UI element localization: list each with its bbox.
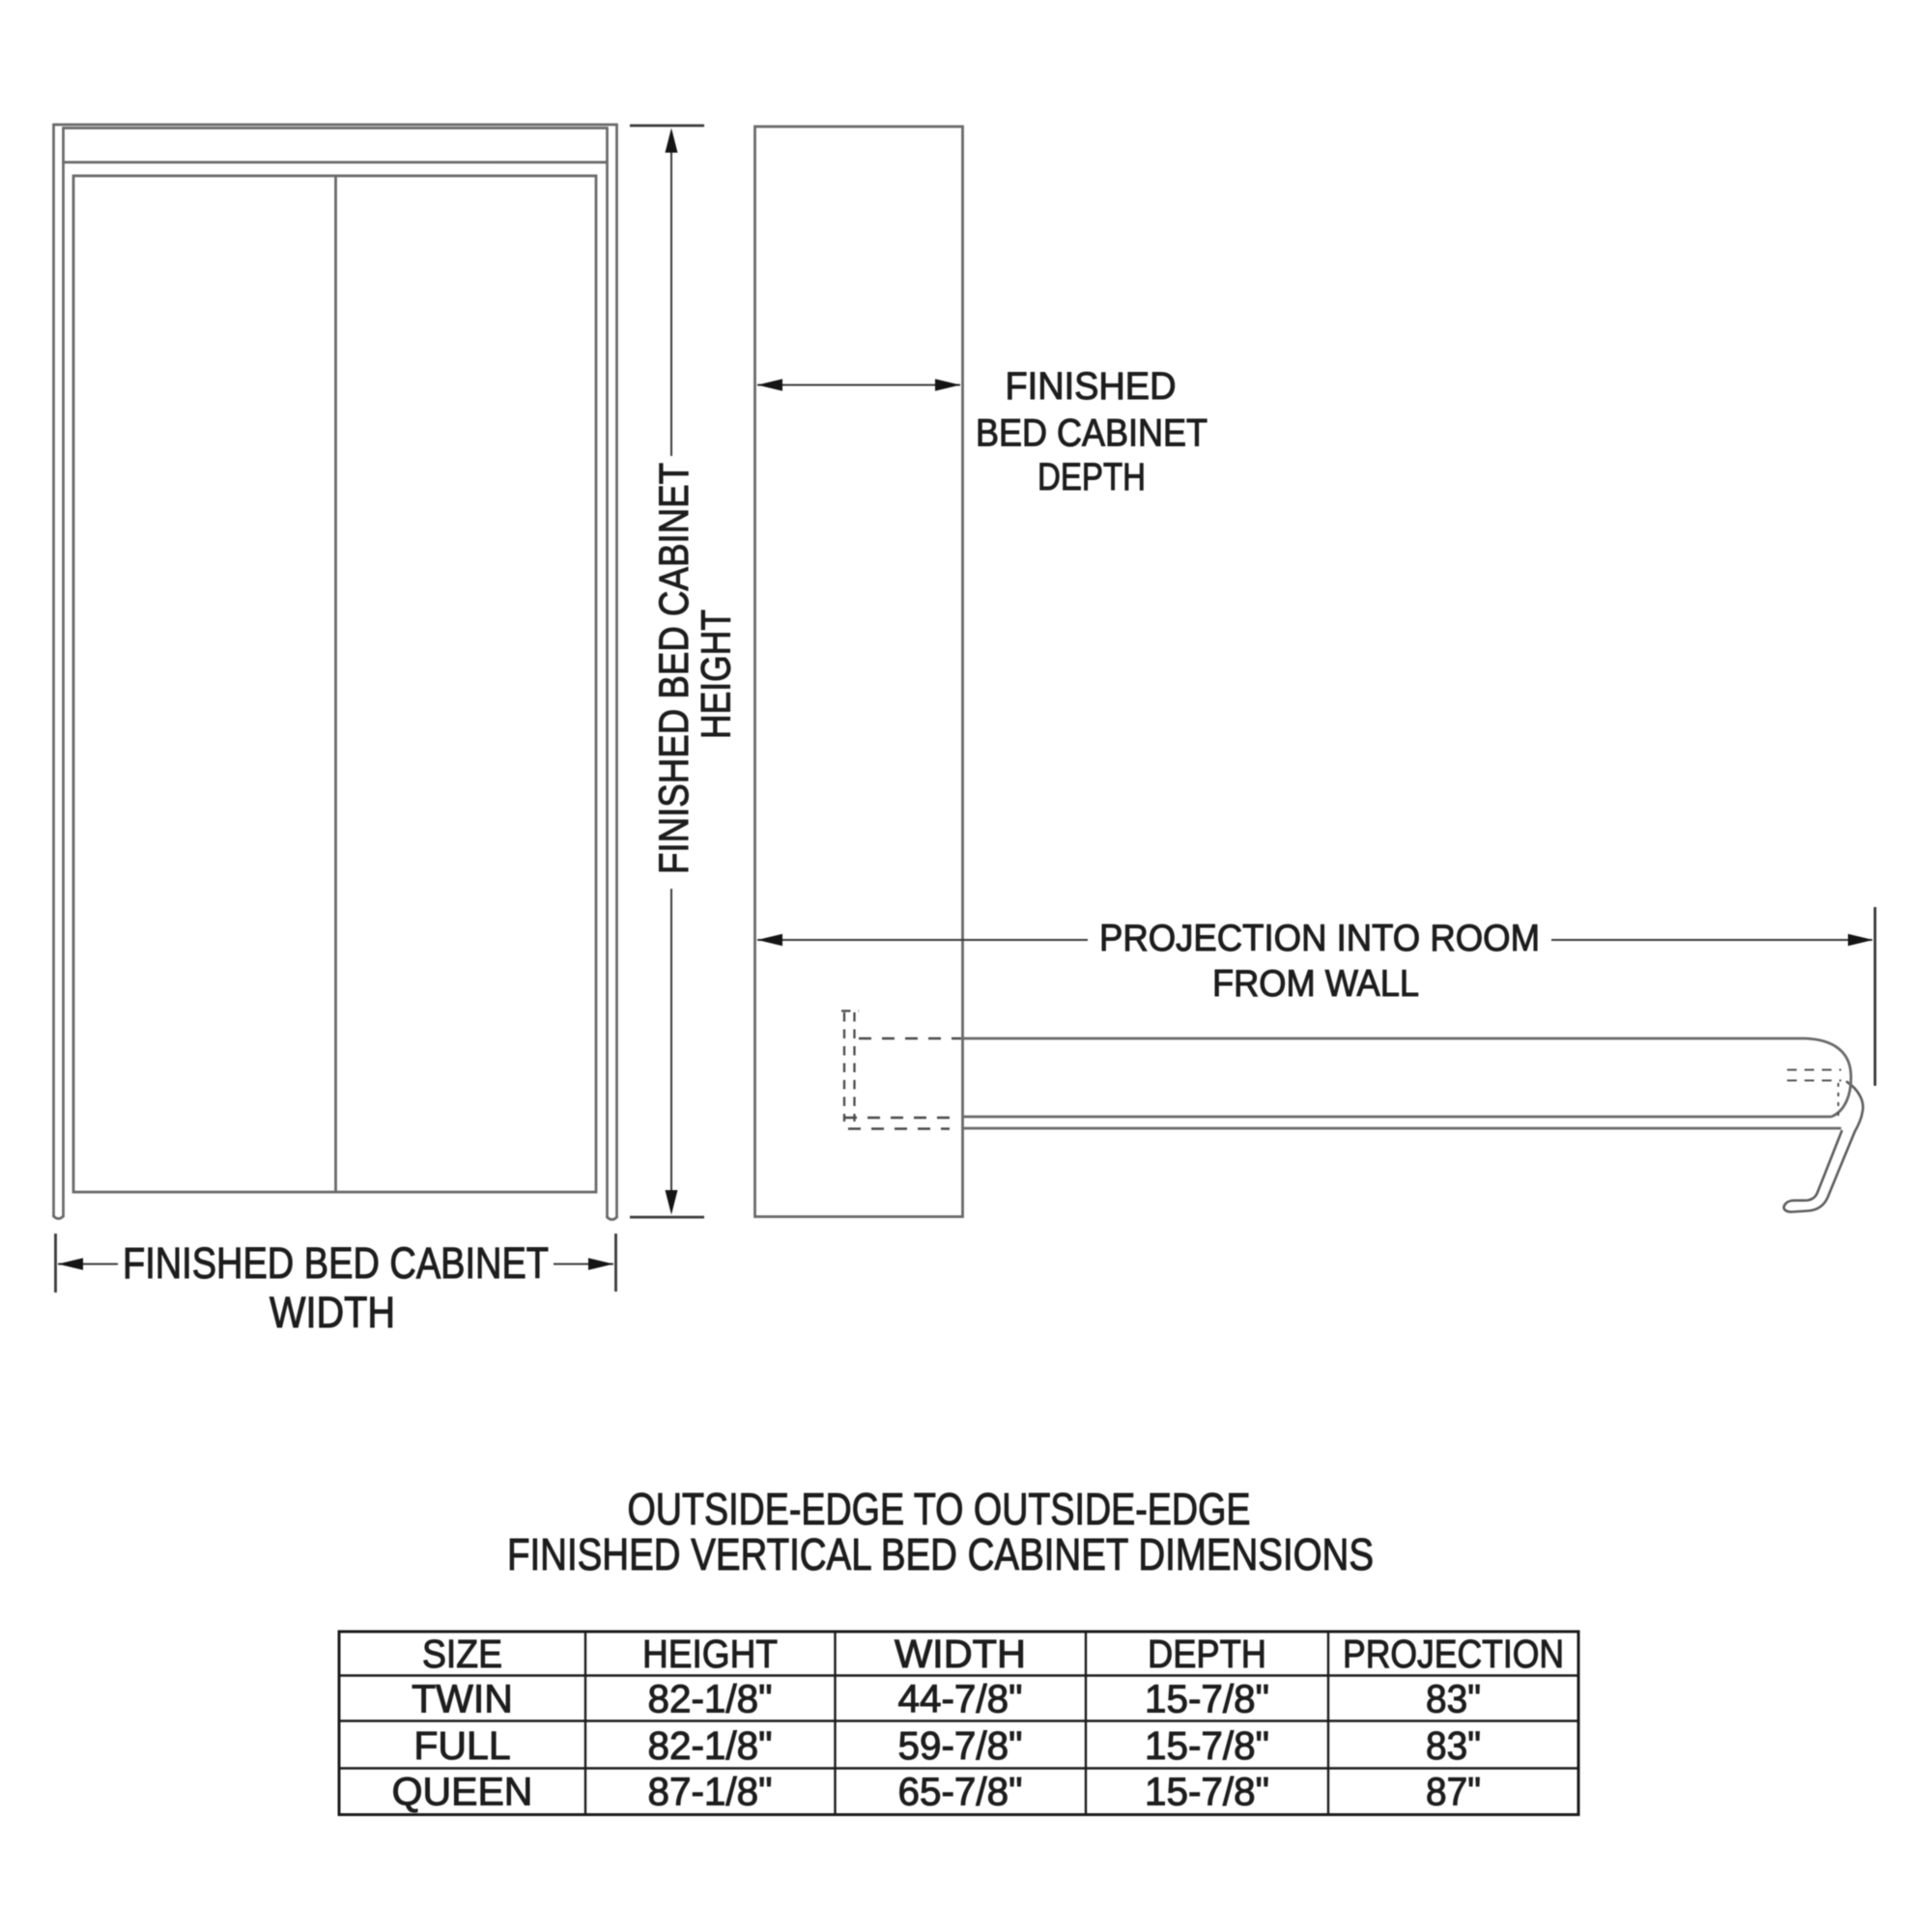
svg-text:87-1/8": 87-1/8" <box>648 1770 773 1814</box>
svg-text:15-7/8": 15-7/8" <box>1145 1770 1269 1814</box>
svg-text:82-1/8": 82-1/8" <box>648 1723 773 1768</box>
svg-text:FINISHED BED CABINET: FINISHED BED CABINET <box>123 1238 549 1288</box>
svg-text:FINISHED VERTICAL BED CABINET: FINISHED VERTICAL BED CABINET DIMENSIONS <box>507 1529 1374 1579</box>
svg-text:FULL: FULL <box>413 1723 510 1768</box>
svg-text:FINISHED BED CABINET: FINISHED BED CABINET <box>651 463 697 874</box>
svg-text:15-7/8": 15-7/8" <box>1145 1723 1269 1768</box>
svg-text:TWIN: TWIN <box>412 1677 513 1721</box>
svg-text:WIDTH: WIDTH <box>895 1632 1026 1676</box>
svg-text:44-7/8": 44-7/8" <box>898 1677 1023 1721</box>
svg-text:82-1/8": 82-1/8" <box>648 1677 773 1721</box>
svg-text:15-7/8": 15-7/8" <box>1145 1677 1269 1721</box>
svg-text:PROJECTION: PROJECTION <box>1343 1632 1564 1676</box>
svg-text:FROM WALL: FROM WALL <box>1212 963 1419 1005</box>
svg-text:HEIGHT: HEIGHT <box>642 1632 778 1676</box>
svg-text:DEPTH: DEPTH <box>1148 1632 1266 1676</box>
svg-text:HEIGHT: HEIGHT <box>694 610 740 739</box>
svg-text:QUEEN: QUEEN <box>392 1770 533 1814</box>
svg-text:WIDTH: WIDTH <box>270 1288 395 1337</box>
svg-text:FINISHED: FINISHED <box>1006 365 1177 408</box>
svg-text:BED CABINET: BED CABINET <box>976 412 1207 455</box>
svg-text:SIZE: SIZE <box>422 1632 502 1676</box>
svg-text:OUTSIDE-EDGE TO OUTSIDE-EDGE: OUTSIDE-EDGE TO OUTSIDE-EDGE <box>628 1484 1251 1534</box>
svg-text:87": 87" <box>1426 1770 1481 1814</box>
svg-text:65-7/8": 65-7/8" <box>898 1770 1023 1814</box>
svg-text:PROJECTION INTO ROOM: PROJECTION INTO ROOM <box>1099 918 1540 959</box>
svg-text:59-7/8": 59-7/8" <box>898 1723 1023 1768</box>
svg-text:83": 83" <box>1426 1677 1481 1721</box>
svg-text:DEPTH: DEPTH <box>1037 456 1146 498</box>
svg-text:83": 83" <box>1426 1723 1481 1768</box>
